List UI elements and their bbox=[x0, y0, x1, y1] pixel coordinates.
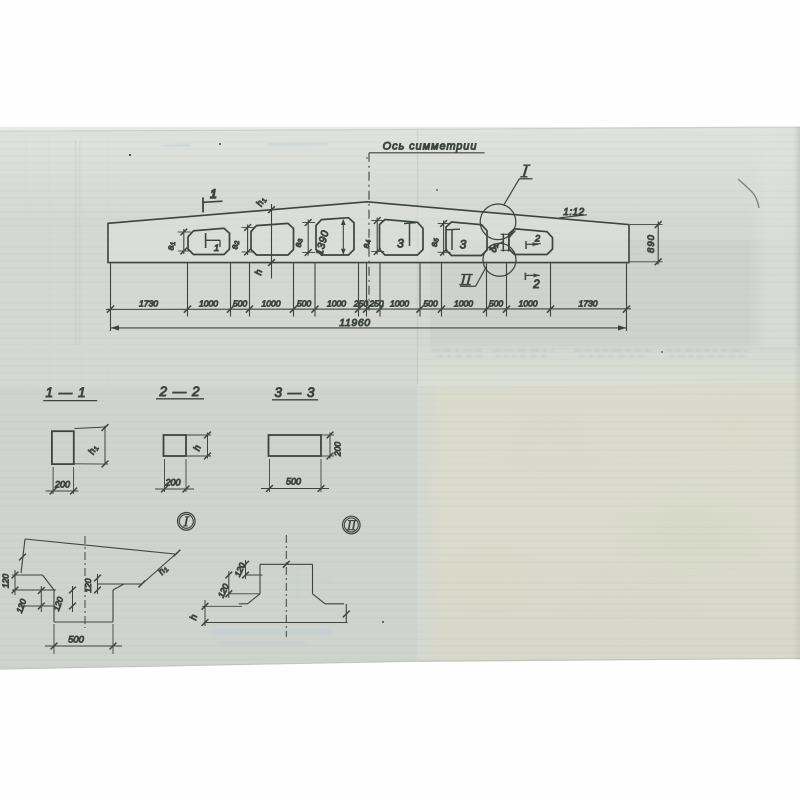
svg-text:1000: 1000 bbox=[390, 298, 409, 308]
svg-text:500: 500 bbox=[297, 298, 312, 308]
svg-text:500: 500 bbox=[423, 298, 438, 308]
svg-text:250: 250 bbox=[353, 298, 369, 308]
svg-text:1000: 1000 bbox=[261, 298, 280, 308]
svg-text:200: 200 bbox=[333, 442, 343, 457]
svg-text:3 — 3: 3 — 3 bbox=[274, 385, 315, 400]
svg-text:500: 500 bbox=[286, 477, 301, 487]
svg-text:1000: 1000 bbox=[199, 298, 218, 308]
svg-text:2 — 2: 2 — 2 bbox=[158, 384, 200, 399]
svg-text:500: 500 bbox=[233, 298, 248, 308]
svg-text:1000: 1000 bbox=[518, 298, 537, 308]
svg-text:500: 500 bbox=[489, 298, 504, 308]
svg-text:120: 120 bbox=[1, 574, 11, 588]
svg-text:h: h bbox=[192, 444, 204, 453]
svg-text:h: h bbox=[188, 613, 200, 621]
svg-text:200: 200 bbox=[54, 480, 70, 490]
svg-text:1730: 1730 bbox=[139, 298, 158, 308]
svg-text:500: 500 bbox=[68, 635, 85, 646]
svg-text:120: 120 bbox=[83, 578, 93, 592]
svg-text:11960: 11960 bbox=[339, 317, 370, 329]
svg-text:200: 200 bbox=[164, 478, 180, 488]
svg-text:h1: h1 bbox=[86, 443, 101, 457]
svg-text:1000: 1000 bbox=[327, 298, 346, 308]
svg-text:1000: 1000 bbox=[454, 298, 473, 308]
svg-text:120: 120 bbox=[14, 597, 28, 614]
svg-text:120: 120 bbox=[51, 595, 65, 612]
svg-text:1730: 1730 bbox=[578, 298, 597, 308]
svg-text:250: 250 bbox=[368, 298, 384, 308]
svg-text:1 — 1: 1 — 1 bbox=[45, 385, 86, 400]
